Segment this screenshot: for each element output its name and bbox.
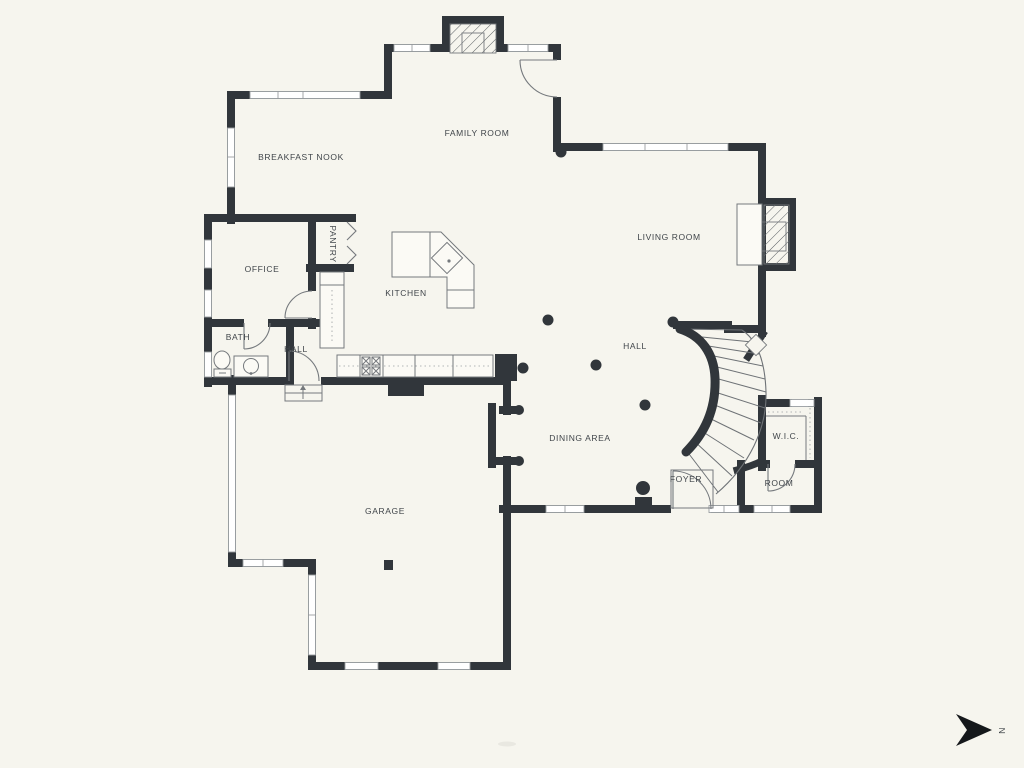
room-label-garage: GARAGE	[365, 506, 405, 516]
north-label: N	[997, 728, 1007, 735]
wall-stub	[388, 385, 424, 396]
vanity-sink-icon	[234, 356, 268, 377]
room-label-foyer: FOYER	[670, 474, 702, 484]
room-label-living-room: LIVING ROOM	[637, 232, 700, 242]
room-label-bath: BATH	[226, 332, 250, 342]
kitchen-counter	[337, 355, 493, 377]
room-label-dining-area: DINING AREA	[549, 433, 610, 443]
room-label-pantry: PANTRY	[328, 225, 338, 262]
kitchen-west-cabinets	[320, 272, 344, 348]
plan-background	[0, 0, 1024, 768]
room-label-hall-small: HALL	[284, 344, 308, 354]
room-label-office: OFFICE	[245, 264, 280, 274]
room-label-family-room: FAMILY ROOM	[445, 128, 510, 138]
entry-wall-stub	[635, 497, 652, 509]
room-label-breakfast-nook: BREAKFAST NOOK	[258, 152, 344, 162]
room-label-room: ROOM	[765, 478, 794, 488]
room-label-hall: HALL	[623, 341, 647, 351]
floor-plan: FAMILY ROOM BREAKFAST NOOK LIVING ROOM O…	[0, 0, 1024, 768]
room-label-kitchen: KITCHEN	[385, 288, 427, 298]
garage-column	[384, 560, 393, 570]
counter-end-wall	[495, 354, 517, 381]
room-label-wic: W.I.C.	[773, 431, 800, 441]
watermark	[498, 742, 516, 747]
fireplace-top	[450, 24, 496, 53]
hearth	[737, 204, 762, 265]
toilet-icon	[214, 351, 231, 377]
wic-opening	[790, 400, 814, 407]
